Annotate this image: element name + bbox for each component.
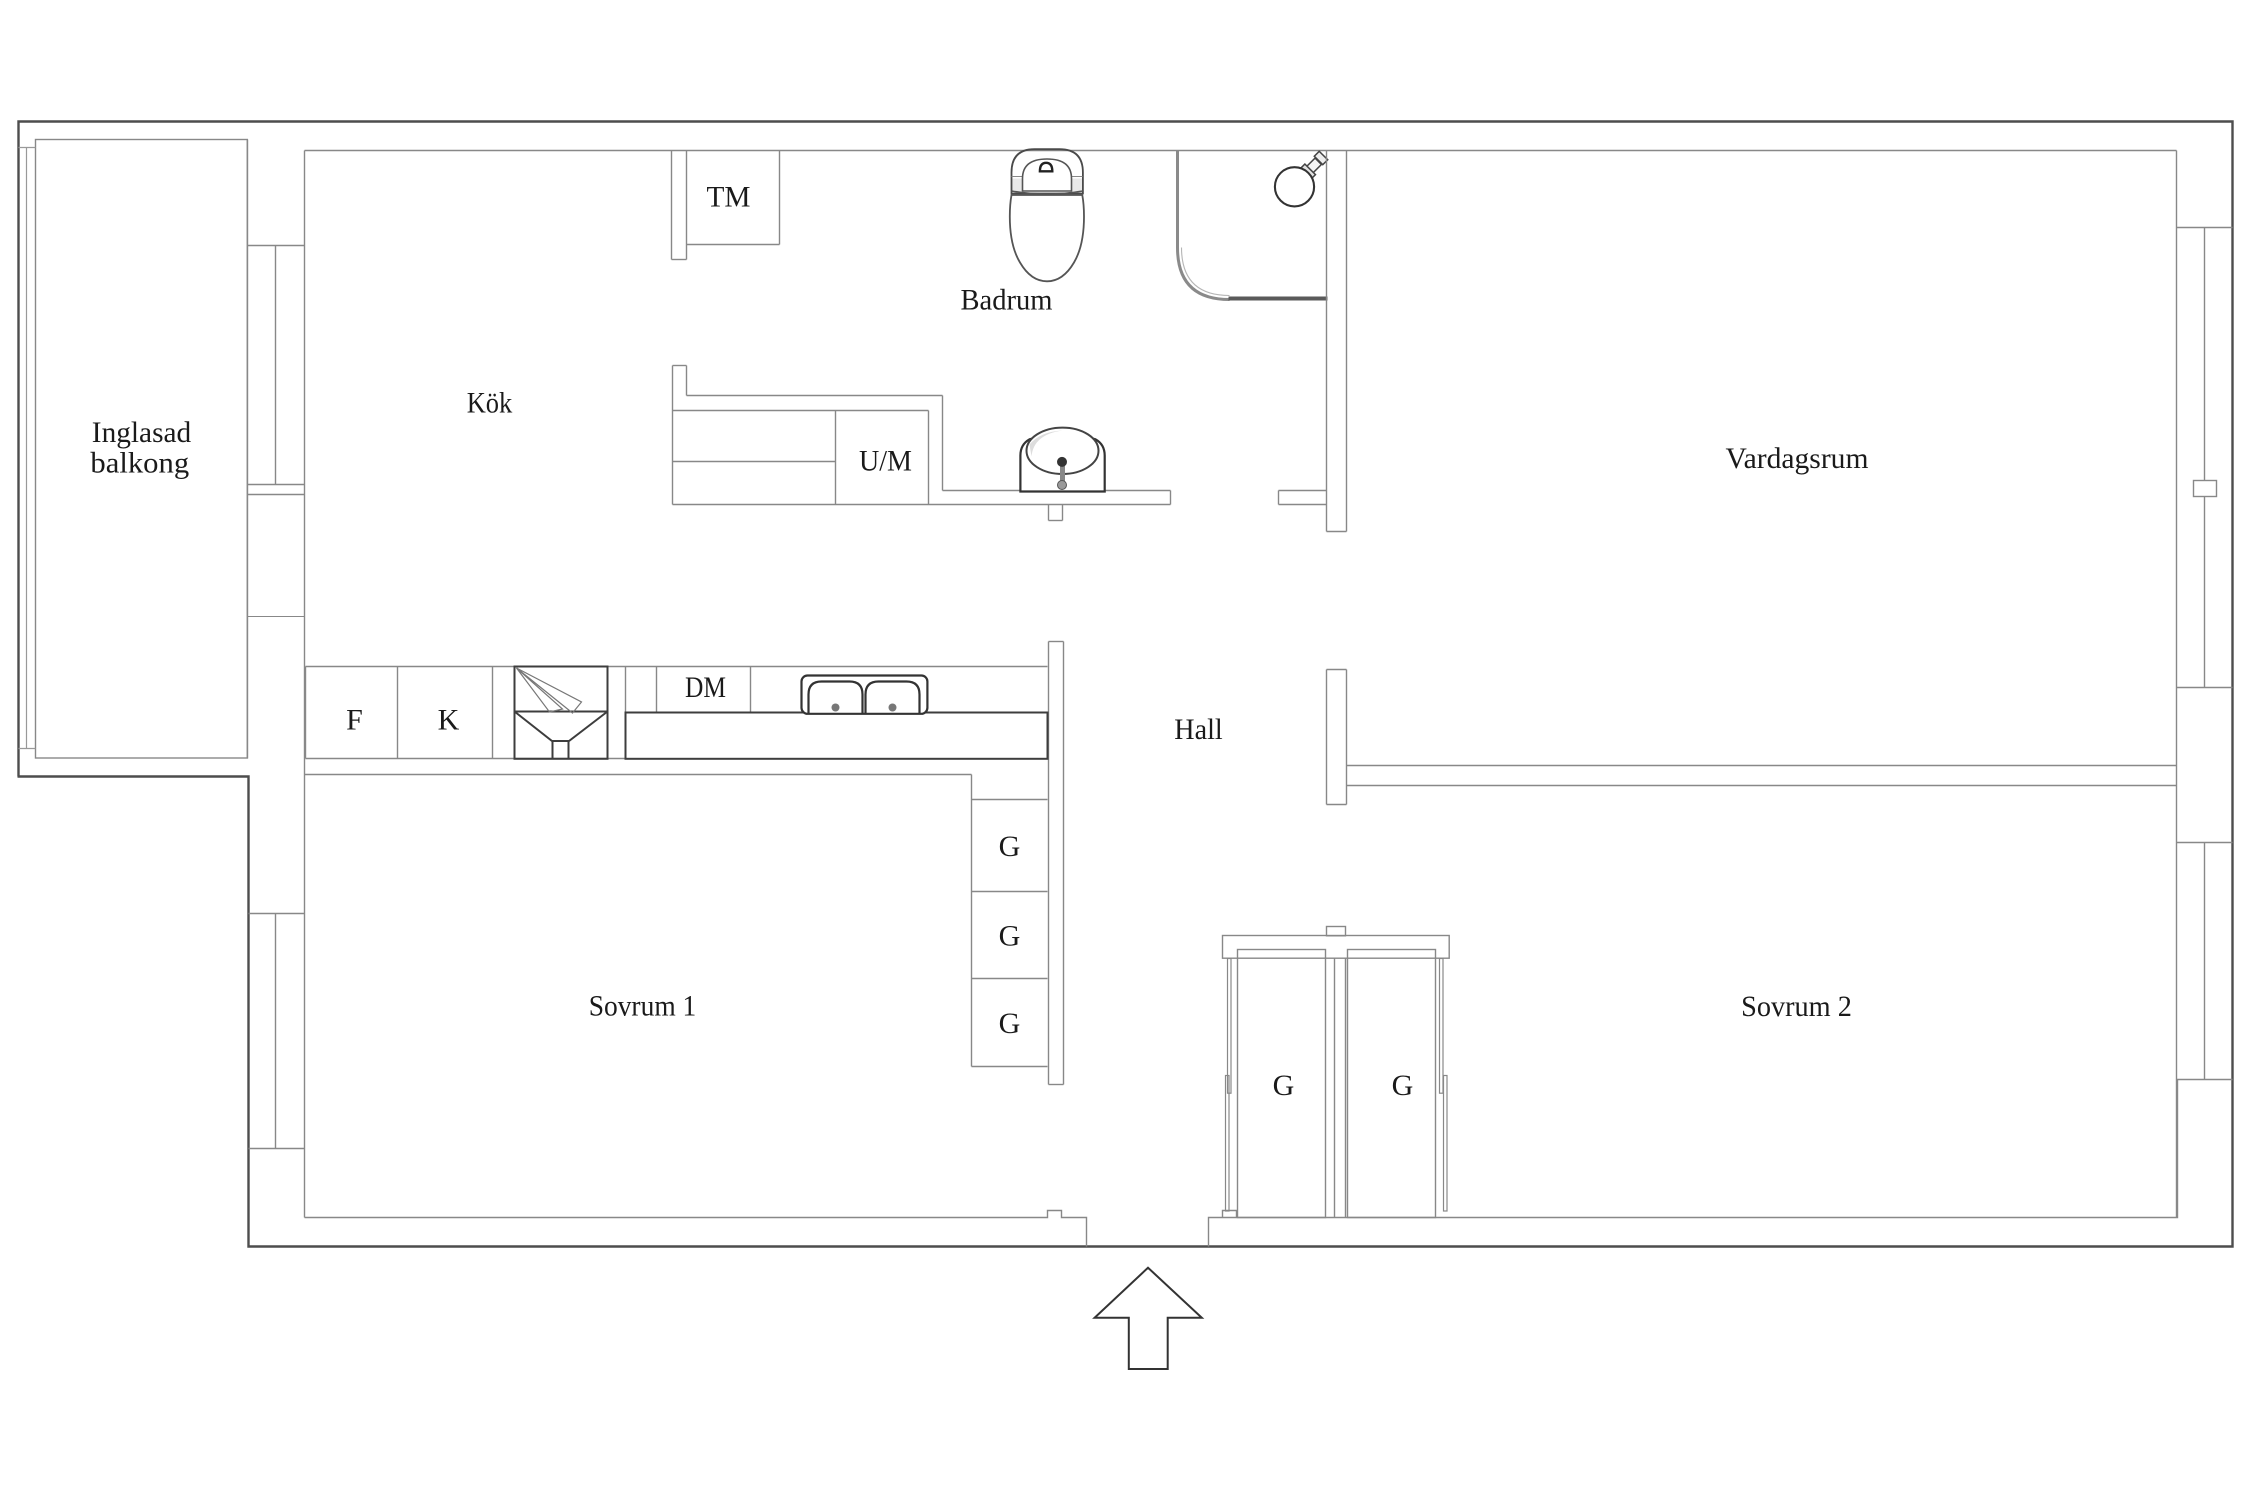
svg-text:Sovrum 1: Sovrum 1 [589,990,697,1023]
svg-text:TM: TM [707,181,751,214]
svg-text:G: G [1273,1069,1295,1102]
svg-text:G: G [999,920,1021,953]
svg-text:G: G [999,830,1021,863]
svg-text:F: F [346,704,363,737]
svg-text:Vardagsrum: Vardagsrum [1726,442,1869,475]
svg-text:Hall: Hall [1174,713,1222,746]
svg-text:Inglasad: Inglasad [92,416,191,449]
svg-text:Badrum: Badrum [961,284,1053,317]
svg-text:G: G [1392,1069,1414,1102]
svg-text:U/M: U/M [859,445,912,478]
svg-text:Sovrum 2: Sovrum 2 [1741,990,1852,1023]
svg-text:balkong: balkong [90,447,189,480]
svg-text:Kök: Kök [467,387,513,420]
svg-text:DM: DM [685,671,726,704]
svg-text:K: K [438,704,460,737]
svg-text:G: G [999,1007,1021,1040]
